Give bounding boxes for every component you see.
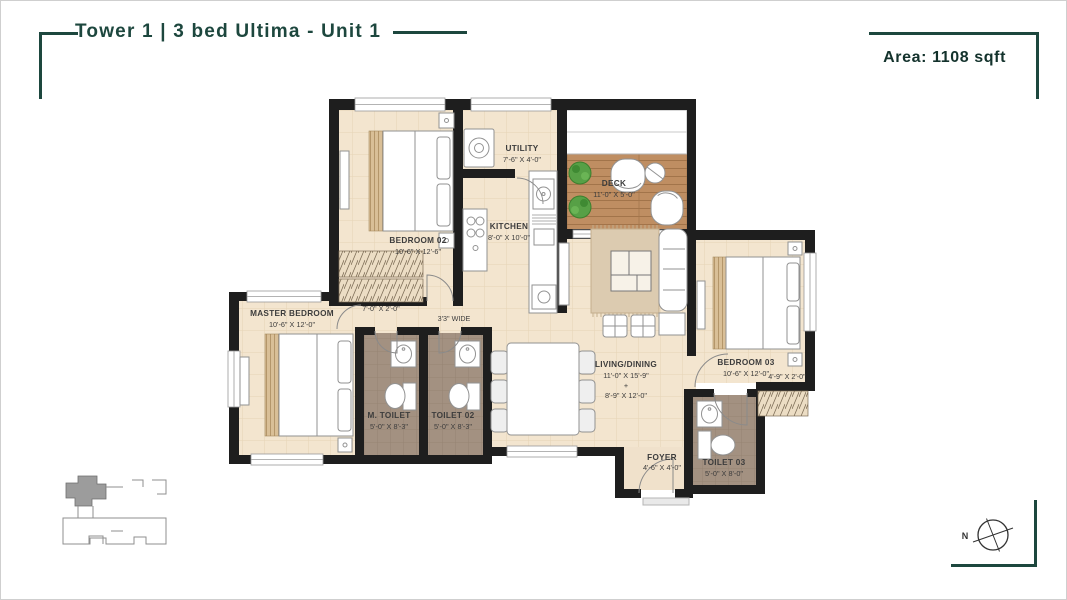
svg-text:8'-0" X 10'-0": 8'-0" X 10'-0" — [488, 233, 530, 242]
svg-text:7'-6" X 4'-0": 7'-6" X 4'-0" — [503, 155, 541, 164]
svg-text:KITCHEN: KITCHEN — [490, 222, 529, 231]
svg-text:LIVING/DINING: LIVING/DINING — [595, 360, 657, 369]
svg-text:5'-0" X 8'-3": 5'-0" X 8'-3" — [434, 422, 472, 431]
entrance-step — [643, 498, 689, 505]
svg-text:UTILITY: UTILITY — [505, 144, 538, 153]
svg-text:BEDROOM 03: BEDROOM 03 — [717, 358, 774, 367]
dining-set — [491, 343, 595, 435]
svg-text:11'-0" X 15'-9": 11'-0" X 15'-9" — [603, 371, 649, 380]
svg-text:11'-0" X 5'-0": 11'-0" X 5'-0" — [593, 190, 635, 199]
svg-text:DECK: DECK — [602, 179, 626, 188]
svg-text:5'-0" X 8'-0": 5'-0" X 8'-0" — [705, 469, 743, 478]
svg-text:10'-6" X 12'-0": 10'-6" X 12'-0" — [723, 369, 770, 378]
svg-text:+: + — [624, 381, 628, 390]
svg-text:TOILET 03: TOILET 03 — [702, 458, 745, 467]
svg-text:TOILET 02: TOILET 02 — [431, 411, 474, 420]
north-label: N — [962, 531, 969, 541]
floor-plan-sheet: Tower 1 | 3 bed Ultima - Unit 1 Area: 11… — [0, 0, 1067, 600]
annotation-passage-width: 3'3" WIDE — [438, 314, 471, 323]
washing-machine — [464, 129, 494, 167]
deck-ledge — [566, 110, 687, 154]
annotation-bedroom03-ledge: 4'-9" X 2'-0" — [768, 372, 806, 381]
svg-text:5'-0" X 8'-3": 5'-0" X 8'-3" — [370, 422, 408, 431]
annotation-wardrobe-ledge: 7'-0" X 2'-0" — [362, 304, 400, 313]
bed-bedroom03 — [697, 242, 802, 366]
svg-text:MASTER BEDROOM: MASTER BEDROOM — [250, 309, 334, 318]
room-label-foyer: FOYER 4'-6" X 4'-0" — [643, 453, 681, 472]
svg-text:10'-6" X 12'-6": 10'-6" X 12'-6" — [395, 247, 442, 256]
svg-text:M. TOILET: M. TOILET — [367, 411, 410, 420]
svg-text:10'-6" X 12'-0": 10'-6" X 12'-0" — [269, 320, 316, 329]
floor-plan: BEDROOM 02 10'-6" X 12'-6" UTILITY 7'-6"… — [1, 1, 1067, 600]
svg-text:BEDROOM 02: BEDROOM 02 — [389, 236, 446, 245]
key-plan — [63, 476, 166, 544]
svg-text:FOYER: FOYER — [647, 453, 677, 462]
svg-text:8'-9" X 12'-0": 8'-9" X 12'-0" — [605, 391, 647, 400]
svg-text:4'-6" X 4'-0": 4'-6" X 4'-0" — [643, 463, 681, 472]
compass-icon: N — [962, 519, 1013, 552]
